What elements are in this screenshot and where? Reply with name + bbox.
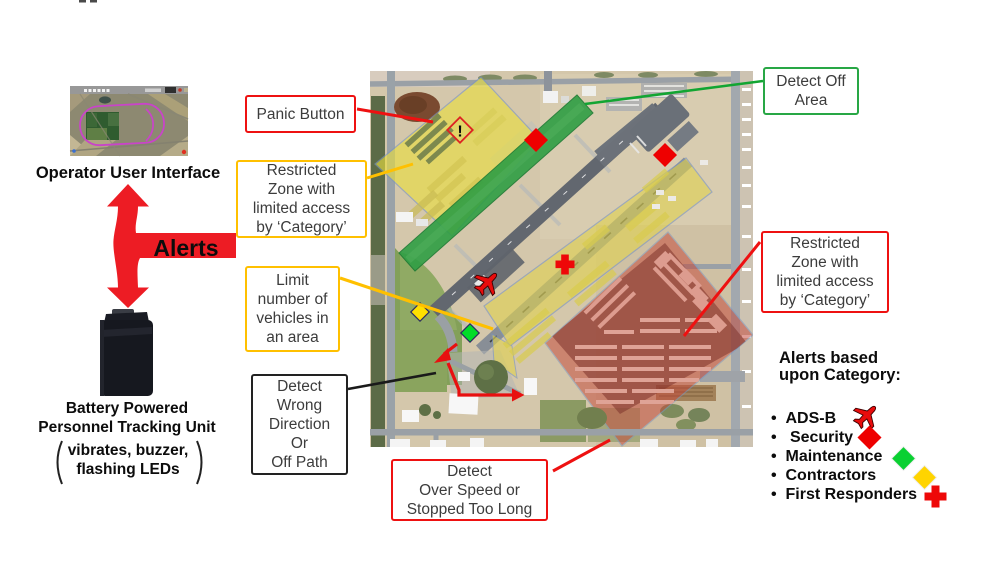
svg-text:!: ! — [457, 124, 462, 141]
